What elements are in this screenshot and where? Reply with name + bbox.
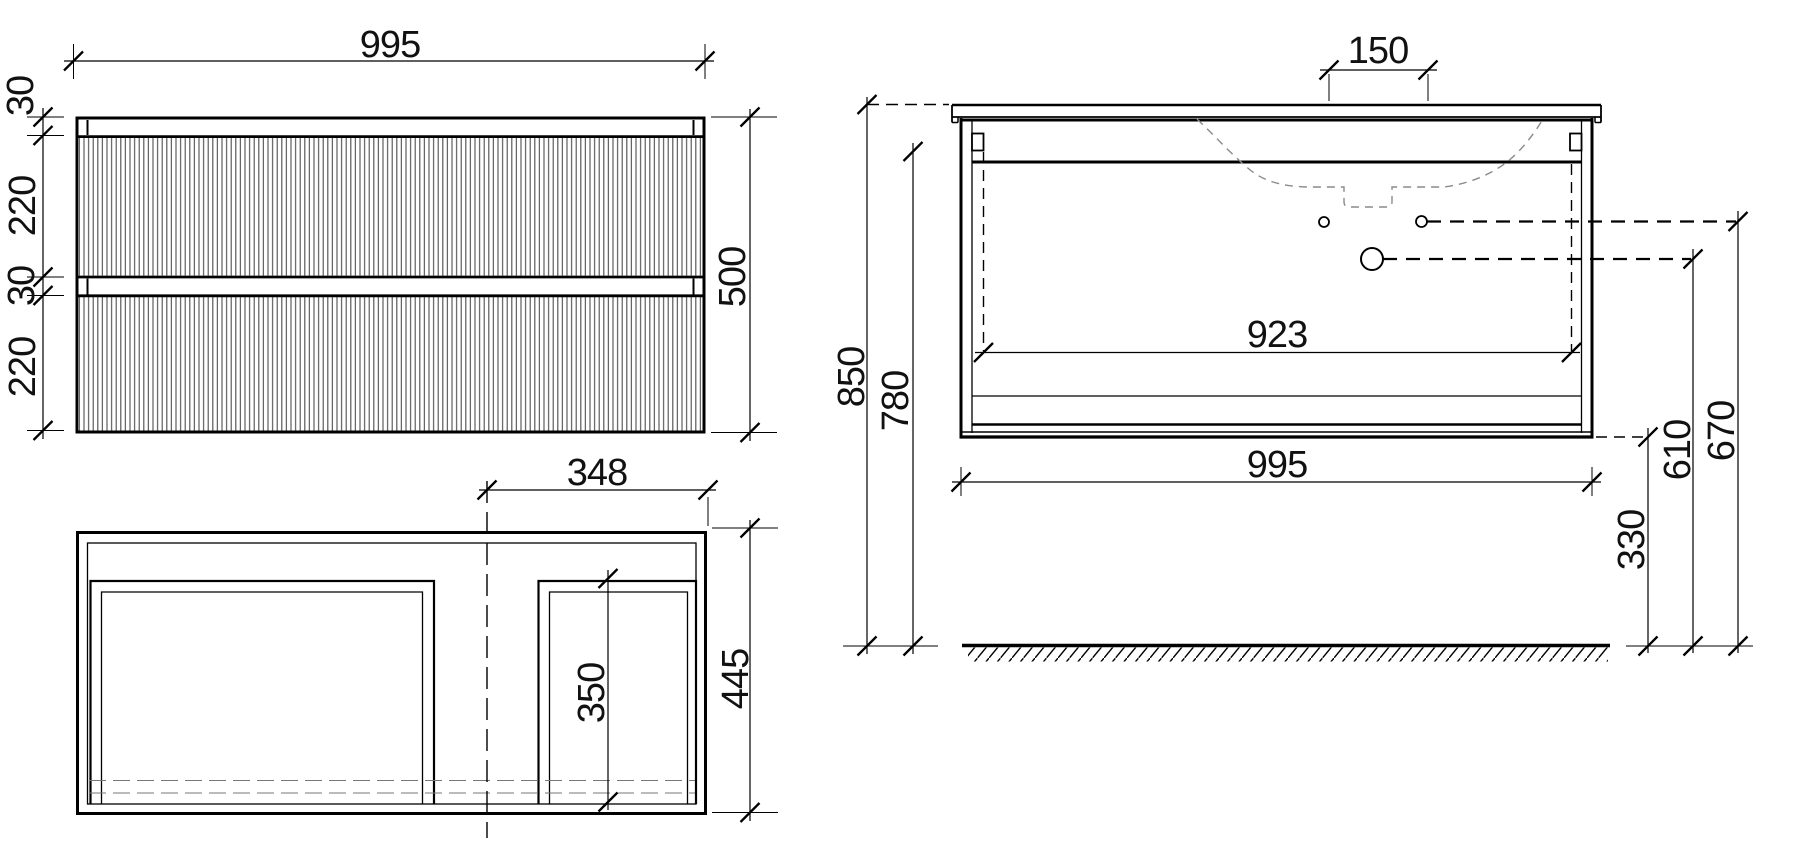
dim-label-hole-spacing: 150 (1348, 30, 1408, 72)
dim-label-overall-height: 850 (831, 347, 873, 407)
upper-drawer-fluted-face (79, 138, 702, 276)
dim-label-install-width: 995 (1247, 444, 1307, 486)
right-mounting-bracket (1570, 134, 1582, 151)
dim-label-top-height: 780 (875, 371, 917, 431)
dim-label-interior-width: 923 (1247, 314, 1307, 356)
dim-label-front-height: 500 (712, 247, 754, 307)
dim-label-basin-offset: 348 (567, 452, 627, 494)
dim-label-lower-drawer: 220 (2, 337, 44, 397)
dim-label-upper-drawer: 220 (2, 176, 44, 236)
floor-hatching (968, 648, 1608, 662)
dim-label-plan-depth: 445 (715, 649, 757, 709)
drain-hole (1361, 248, 1383, 270)
dim-label-small-hole-height: 670 (1701, 401, 1743, 461)
lower-drawer-fluted-face (79, 297, 702, 431)
dim-label-bottom-clearance: 330 (1611, 510, 1653, 570)
fixing-hole-left (1319, 217, 1329, 227)
floor (962, 646, 1610, 662)
dim-label-large-hole-height: 610 (1657, 420, 1699, 480)
left-mounting-bracket (972, 134, 984, 151)
vanity-drawing-canvas: 995 30 220 30 220 500 (0, 0, 1800, 852)
dim-label-front-width: 995 (360, 24, 420, 66)
dim-label-top-rail: 30 (0, 76, 42, 116)
dim-label-drawer-gap: 30 (1, 266, 43, 306)
fixing-hole-right (1416, 216, 1427, 227)
dim-label-compartment-depth: 350 (571, 663, 613, 723)
technical-drawing-page: 995 30 220 30 220 500 (0, 0, 1800, 852)
